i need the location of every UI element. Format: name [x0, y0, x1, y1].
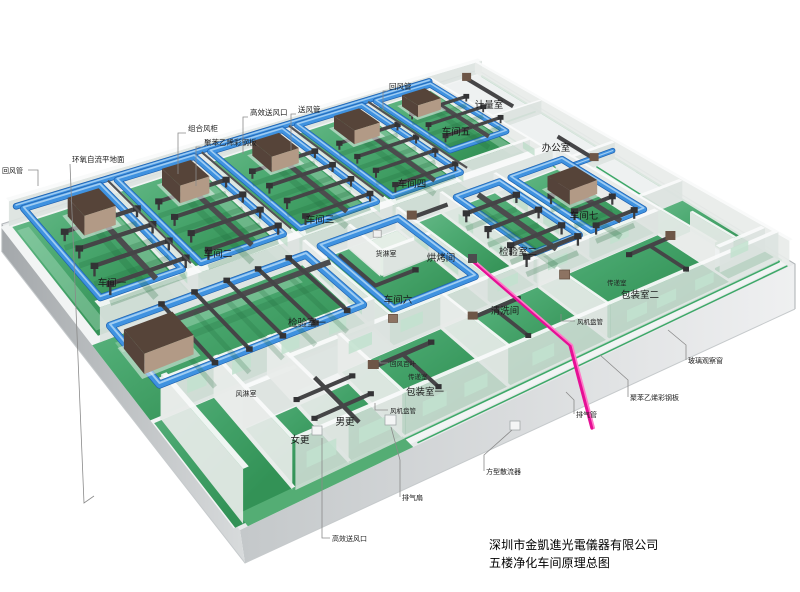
svg-text:车间五: 车间五 [442, 126, 471, 138]
svg-text:玻璃观察窗: 玻璃观察窗 [688, 356, 723, 365]
svg-text:车间二: 车间二 [204, 248, 233, 260]
svg-text:回风管: 回风管 [2, 166, 23, 175]
svg-text:深圳市金凱進光電儀器有限公司: 深圳市金凱進光電儀器有限公司 [489, 537, 658, 552]
svg-text:聚苯乙烯彩钢板: 聚苯乙烯彩钢板 [630, 393, 679, 402]
svg-text:风淋室: 风淋室 [236, 389, 257, 398]
svg-text:方型散流器: 方型散流器 [486, 467, 521, 476]
svg-text:包装室二: 包装室二 [621, 289, 659, 301]
svg-text:送风管: 送风管 [298, 104, 321, 114]
svg-text:车间三: 车间三 [306, 214, 335, 226]
svg-text:传递室: 传递室 [408, 372, 428, 381]
svg-text:车间六: 车间六 [384, 294, 413, 306]
svg-text:排气扇: 排气扇 [402, 493, 423, 502]
svg-text:办公室: 办公室 [542, 142, 571, 154]
svg-text:女更: 女更 [290, 434, 310, 446]
svg-text:排气管: 排气管 [576, 410, 597, 419]
svg-text:清洗间: 清洗间 [491, 305, 520, 317]
svg-text:环氧自流平地面: 环氧自流平地面 [72, 154, 125, 164]
svg-text:烘烤间: 烘烤间 [427, 252, 456, 264]
svg-text:回风管: 回风管 [389, 81, 412, 91]
svg-text:风机盘管: 风机盘管 [390, 406, 417, 415]
svg-text:计量室: 计量室 [475, 99, 504, 111]
svg-text:高效送风口: 高效送风口 [332, 534, 367, 543]
svg-text:男更: 男更 [335, 417, 355, 428]
svg-text:车间七: 车间七 [570, 210, 599, 222]
svg-text:回风百叶: 回风百叶 [390, 359, 417, 368]
svg-text:高效送风口: 高效送风口 [250, 107, 288, 117]
svg-text:风机盘管: 风机盘管 [577, 317, 604, 326]
svg-text:组合风柜: 组合风柜 [188, 123, 218, 133]
svg-text:车间一: 车间一 [98, 277, 127, 289]
svg-text:车间四: 车间四 [398, 178, 427, 190]
svg-text:传递室: 传递室 [607, 278, 627, 287]
svg-text:检验室二: 检验室二 [499, 246, 537, 258]
svg-text:货淋室: 货淋室 [376, 249, 397, 258]
svg-text:五楼净化车间原理总图: 五楼净化车间原理总图 [489, 555, 610, 570]
svg-text:聚苯乙烯彩钢板: 聚苯乙烯彩钢板 [204, 137, 257, 147]
svg-text:检验室一: 检验室一 [288, 317, 327, 329]
svg-text:包装室一: 包装室一 [406, 386, 445, 398]
